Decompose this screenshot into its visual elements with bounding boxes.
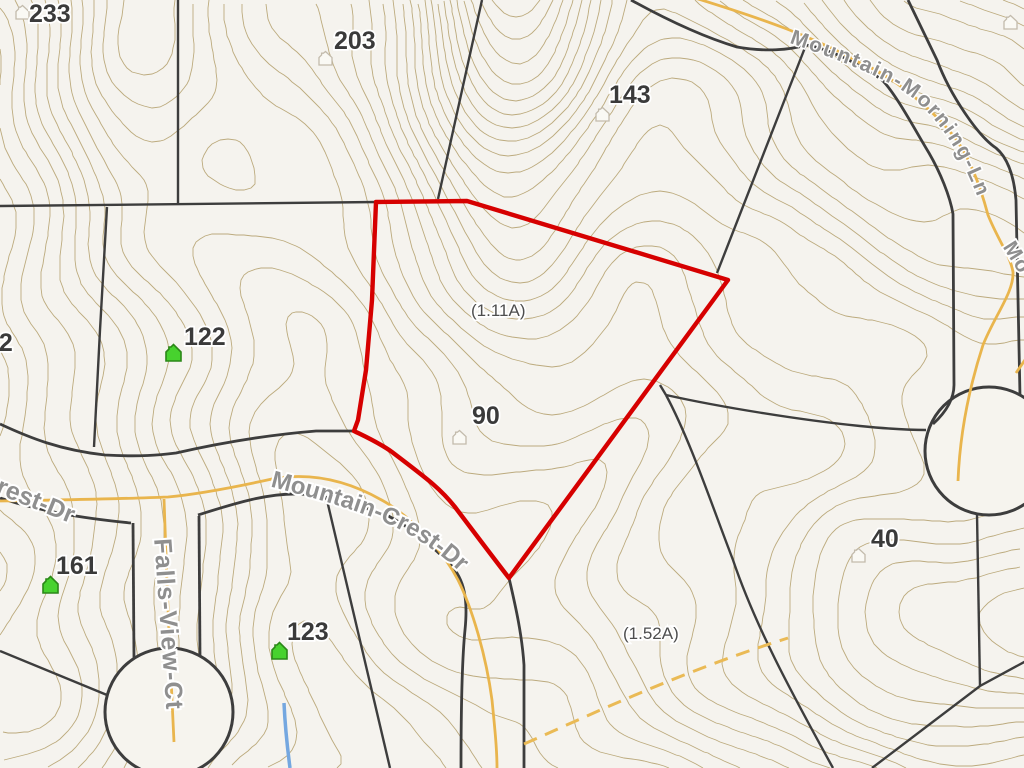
svg-text:(1.11A): (1.11A) xyxy=(471,301,526,320)
svg-text:(1.52A): (1.52A) xyxy=(623,624,679,643)
svg-text:143: 143 xyxy=(609,81,651,109)
svg-text:52: 52 xyxy=(0,329,13,357)
svg-text:122: 122 xyxy=(184,323,226,351)
svg-text:90: 90 xyxy=(472,402,500,430)
svg-text:161: 161 xyxy=(56,552,98,580)
svg-text:40: 40 xyxy=(871,525,899,553)
svg-text:123: 123 xyxy=(287,618,329,646)
svg-text:203: 203 xyxy=(334,27,376,55)
svg-text:233: 233 xyxy=(29,0,71,28)
